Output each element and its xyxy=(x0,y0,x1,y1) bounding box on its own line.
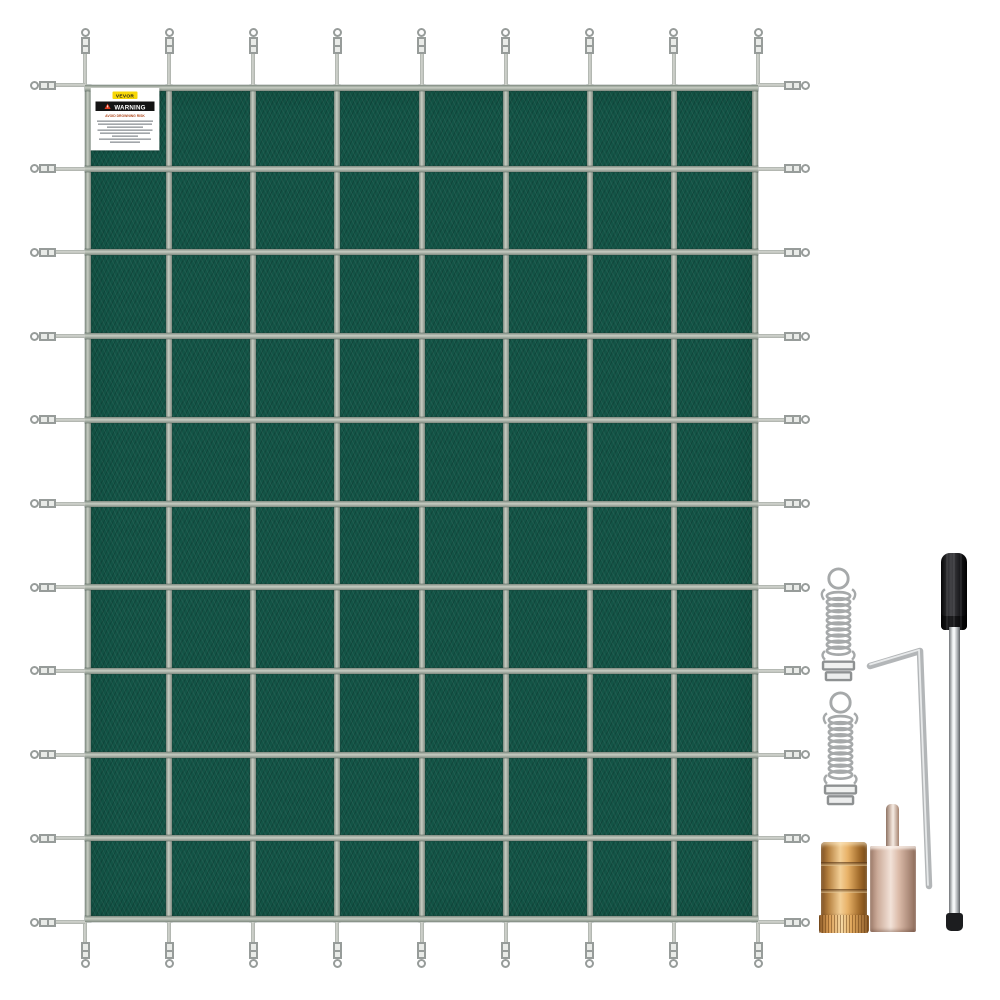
d-ring-icon xyxy=(801,248,810,257)
spring-buckle xyxy=(828,796,853,804)
warning-label: VEVOR WARNING AVOID DROWNING RISK xyxy=(91,88,159,150)
brand-text: VEVOR xyxy=(116,93,135,99)
installation-rod-handle xyxy=(941,553,967,630)
strap-end-left xyxy=(30,749,85,760)
fine-print-line xyxy=(97,121,153,122)
strap-stem xyxy=(504,54,508,85)
strap-stem xyxy=(758,250,784,254)
pool-safety-cover xyxy=(85,85,758,922)
d-ring-icon xyxy=(754,959,763,968)
strap-end-bottom xyxy=(332,922,343,968)
slide-buckle-icon xyxy=(754,942,763,959)
strap-end-left xyxy=(30,582,85,593)
warning-label-graphic: VEVOR WARNING AVOID DROWNING RISK xyxy=(91,88,159,150)
strap-end-top xyxy=(248,28,259,85)
slide-buckle-icon xyxy=(39,918,56,927)
d-ring-icon xyxy=(30,583,39,592)
slide-buckle-icon xyxy=(39,248,56,257)
d-ring-icon xyxy=(669,28,678,37)
strap-stem xyxy=(56,250,85,254)
d-ring-icon xyxy=(417,28,426,37)
strap-end-left xyxy=(30,833,85,844)
cover-strap-horizontal xyxy=(85,752,758,758)
spring-buckle xyxy=(825,786,856,794)
d-ring-icon xyxy=(249,959,258,968)
product-photo-scene: VEVOR WARNING AVOID DROWNING RISK xyxy=(0,0,1000,1000)
slide-buckle-icon xyxy=(165,942,174,959)
strap-end-right xyxy=(758,498,810,509)
slide-buckle-icon xyxy=(669,942,678,959)
slide-buckle-icon xyxy=(249,942,258,959)
slide-buckle-icon xyxy=(784,248,801,257)
d-ring-icon xyxy=(30,415,39,424)
strap-end-bottom xyxy=(416,922,427,968)
warning-exclamation-icon xyxy=(107,105,108,107)
slide-buckle-icon xyxy=(754,37,763,54)
d-ring-icon xyxy=(30,499,39,508)
slide-buckle-icon xyxy=(417,37,426,54)
slide-buckle-icon xyxy=(784,666,801,675)
slide-buckle-icon xyxy=(39,415,56,424)
strap-end-left xyxy=(30,414,85,425)
spring-hook xyxy=(854,713,857,724)
fine-print-line xyxy=(107,127,143,128)
d-ring-icon xyxy=(801,332,810,341)
strap-end-right xyxy=(758,917,810,928)
d-ring-icon xyxy=(801,750,810,759)
tamping-tool-pin xyxy=(886,804,899,850)
strap-end-top xyxy=(668,28,679,85)
strap-stem xyxy=(56,836,85,840)
spring-hook xyxy=(852,651,854,660)
slide-buckle-icon xyxy=(585,37,594,54)
slide-buckle-icon xyxy=(784,583,801,592)
strap-stem xyxy=(56,502,85,506)
strap-end-right xyxy=(758,163,810,174)
spring-hook xyxy=(854,775,856,784)
spring-hook xyxy=(822,589,825,600)
slide-buckle-icon xyxy=(39,666,56,675)
slide-buckle-icon xyxy=(784,750,801,759)
d-ring-icon xyxy=(165,28,174,37)
d-ring-icon xyxy=(801,834,810,843)
strap-stem xyxy=(335,54,339,85)
strap-end-top xyxy=(753,28,764,85)
d-ring-icon xyxy=(30,248,39,257)
d-ring-icon xyxy=(30,666,39,675)
tension-spring-bottom xyxy=(818,690,863,806)
d-ring-icon xyxy=(801,81,810,90)
strap-end-left xyxy=(30,247,85,258)
strap-end-left xyxy=(30,665,85,676)
strap-stem xyxy=(588,922,592,942)
slide-buckle-icon xyxy=(784,164,801,173)
strap-stem xyxy=(56,418,85,422)
fine-print-line xyxy=(99,139,151,140)
installation-rod-tip xyxy=(946,913,963,931)
d-ring-icon xyxy=(333,28,342,37)
slide-buckle-icon xyxy=(333,37,342,54)
strap-stem xyxy=(56,334,85,338)
fine-print-line xyxy=(110,142,140,143)
strap-end-top xyxy=(80,28,91,85)
strap-end-left xyxy=(30,917,85,928)
slide-buckle-icon xyxy=(784,332,801,341)
strap-end-bottom xyxy=(584,922,595,968)
strap-stem xyxy=(588,54,592,85)
strap-end-top xyxy=(584,28,595,85)
cover-strap-horizontal xyxy=(85,584,758,590)
strap-stem xyxy=(758,502,784,506)
strap-end-bottom xyxy=(248,922,259,968)
strap-end-top xyxy=(164,28,175,85)
strap-stem xyxy=(167,54,171,85)
slide-buckle-icon xyxy=(501,942,510,959)
strap-end-bottom xyxy=(80,922,91,968)
warning-title: WARNING xyxy=(114,104,145,111)
slide-buckle-icon xyxy=(784,415,801,424)
anchor-groove xyxy=(821,862,867,866)
cover-strap-horizontal xyxy=(85,166,758,172)
d-ring-icon xyxy=(801,499,810,508)
strap-stem xyxy=(758,418,784,422)
cover-strap-horizontal xyxy=(85,501,758,507)
spring-hook xyxy=(852,589,855,600)
spring-hook xyxy=(824,713,827,724)
spring-coil xyxy=(829,771,852,779)
d-ring-icon xyxy=(249,28,258,37)
d-ring-icon xyxy=(165,959,174,968)
strap-end-right xyxy=(758,582,810,593)
slide-buckle-icon xyxy=(39,332,56,341)
slide-buckle-icon xyxy=(39,164,56,173)
strap-end-right xyxy=(758,749,810,760)
d-ring-icon xyxy=(30,834,39,843)
strap-end-bottom xyxy=(500,922,511,968)
strap-end-top xyxy=(332,28,343,85)
slide-buckle-icon xyxy=(784,918,801,927)
fine-print-line xyxy=(98,124,152,125)
fine-print-line xyxy=(98,130,153,131)
strap-stem xyxy=(758,920,784,924)
d-ring-icon xyxy=(30,332,39,341)
fine-print-line xyxy=(112,136,138,137)
cover-strap-horizontal xyxy=(85,668,758,674)
d-ring-icon xyxy=(417,959,426,968)
strap-stem xyxy=(56,585,85,589)
strap-stem xyxy=(56,920,85,924)
d-ring-icon xyxy=(669,959,678,968)
strap-end-left xyxy=(30,331,85,342)
d-ring-icon xyxy=(30,918,39,927)
strap-stem xyxy=(56,167,85,171)
strap-stem xyxy=(672,54,676,85)
strap-stem xyxy=(335,922,339,942)
d-ring-icon xyxy=(501,28,510,37)
strap-stem xyxy=(758,836,784,840)
strap-stem xyxy=(251,54,255,85)
strap-stem xyxy=(420,922,424,942)
d-ring-icon xyxy=(801,583,810,592)
d-ring-icon xyxy=(30,81,39,90)
slide-buckle-icon xyxy=(39,583,56,592)
strap-end-left xyxy=(30,498,85,509)
strap-stem xyxy=(758,83,784,87)
strap-stem xyxy=(167,922,171,942)
slide-buckle-icon xyxy=(39,499,56,508)
tension-spring-graphic xyxy=(818,690,863,806)
slide-buckle-icon xyxy=(784,81,801,90)
spring-coil xyxy=(827,647,850,655)
strap-stem xyxy=(758,669,784,673)
slide-buckle-icon xyxy=(417,942,426,959)
spring-ring xyxy=(829,569,848,588)
brass-wedge-anchor xyxy=(821,842,867,918)
d-ring-icon xyxy=(801,415,810,424)
spring-hook xyxy=(825,775,827,784)
slide-buckle-icon xyxy=(333,942,342,959)
strap-stem xyxy=(251,922,255,942)
anchor-groove xyxy=(821,889,867,893)
strap-end-top xyxy=(500,28,511,85)
strap-end-right xyxy=(758,247,810,258)
anchor-knurled-base xyxy=(819,915,869,933)
slide-buckle-icon xyxy=(784,499,801,508)
d-ring-icon xyxy=(501,959,510,968)
cover-strap-horizontal xyxy=(85,249,758,255)
spring-ring xyxy=(831,693,850,712)
installation-rod-shaft xyxy=(949,627,960,916)
d-ring-icon xyxy=(30,164,39,173)
d-ring-icon xyxy=(30,750,39,759)
slide-buckle-icon xyxy=(39,750,56,759)
strap-stem xyxy=(758,585,784,589)
fine-print-line xyxy=(100,133,150,134)
cover-strap-horizontal xyxy=(85,835,758,841)
strap-end-bottom xyxy=(668,922,679,968)
slide-buckle-icon xyxy=(249,37,258,54)
strap-stem xyxy=(758,167,784,171)
d-ring-icon xyxy=(801,918,810,927)
strap-stem xyxy=(56,83,85,87)
slide-buckle-icon xyxy=(81,37,90,54)
d-ring-icon xyxy=(333,959,342,968)
strap-end-right xyxy=(758,80,810,91)
strap-stem xyxy=(504,922,508,942)
slide-buckle-icon xyxy=(501,37,510,54)
strap-end-left xyxy=(30,163,85,174)
d-ring-icon xyxy=(754,28,763,37)
slide-buckle-icon xyxy=(784,834,801,843)
spring-buckle xyxy=(823,662,854,670)
strap-end-right xyxy=(758,833,810,844)
slide-buckle-icon xyxy=(81,942,90,959)
d-ring-icon xyxy=(801,666,810,675)
tension-spring-top xyxy=(816,566,861,682)
strap-end-bottom xyxy=(753,922,764,968)
slide-buckle-icon xyxy=(165,37,174,54)
strap-end-left xyxy=(30,80,85,91)
strap-end-right xyxy=(758,414,810,425)
strap-stem xyxy=(420,54,424,85)
spring-buckle xyxy=(826,672,851,680)
warning-subtitle: AVOID DROWNING RISK xyxy=(105,114,145,118)
strap-end-right xyxy=(758,331,810,342)
slide-buckle-icon xyxy=(39,834,56,843)
strap-stem xyxy=(672,922,676,942)
strap-end-bottom xyxy=(164,922,175,968)
d-ring-icon xyxy=(585,959,594,968)
strap-stem xyxy=(758,334,784,338)
spring-hook xyxy=(823,651,825,660)
strap-stem xyxy=(56,753,85,757)
cover-strap-horizontal xyxy=(85,333,758,339)
slide-buckle-icon xyxy=(585,942,594,959)
cover-strap-horizontal xyxy=(85,417,758,423)
strap-end-right xyxy=(758,665,810,676)
anchor-tamping-tool xyxy=(870,846,916,932)
cover-strap-horizontal xyxy=(85,85,758,91)
slide-buckle-icon xyxy=(39,81,56,90)
d-ring-icon xyxy=(81,959,90,968)
tension-spring-graphic xyxy=(816,566,861,682)
slide-buckle-icon xyxy=(669,37,678,54)
strap-stem xyxy=(56,669,85,673)
d-ring-icon xyxy=(81,28,90,37)
d-ring-icon xyxy=(585,28,594,37)
strap-stem xyxy=(758,753,784,757)
strap-end-top xyxy=(416,28,427,85)
d-ring-icon xyxy=(801,164,810,173)
